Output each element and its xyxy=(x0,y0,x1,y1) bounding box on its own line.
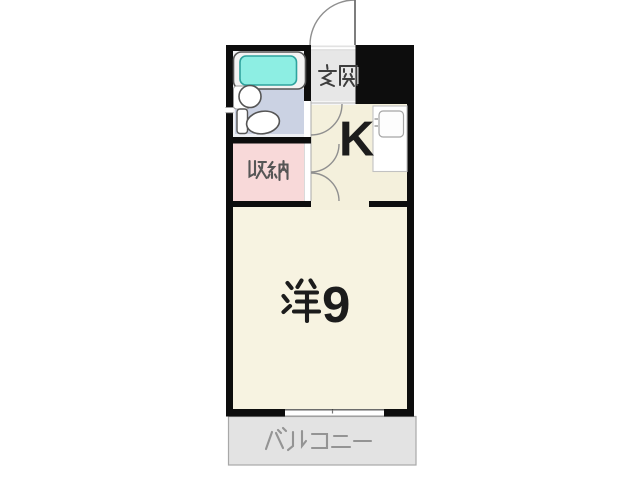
svg-text:K: K xyxy=(339,113,374,167)
svg-text:9: 9 xyxy=(322,276,350,333)
